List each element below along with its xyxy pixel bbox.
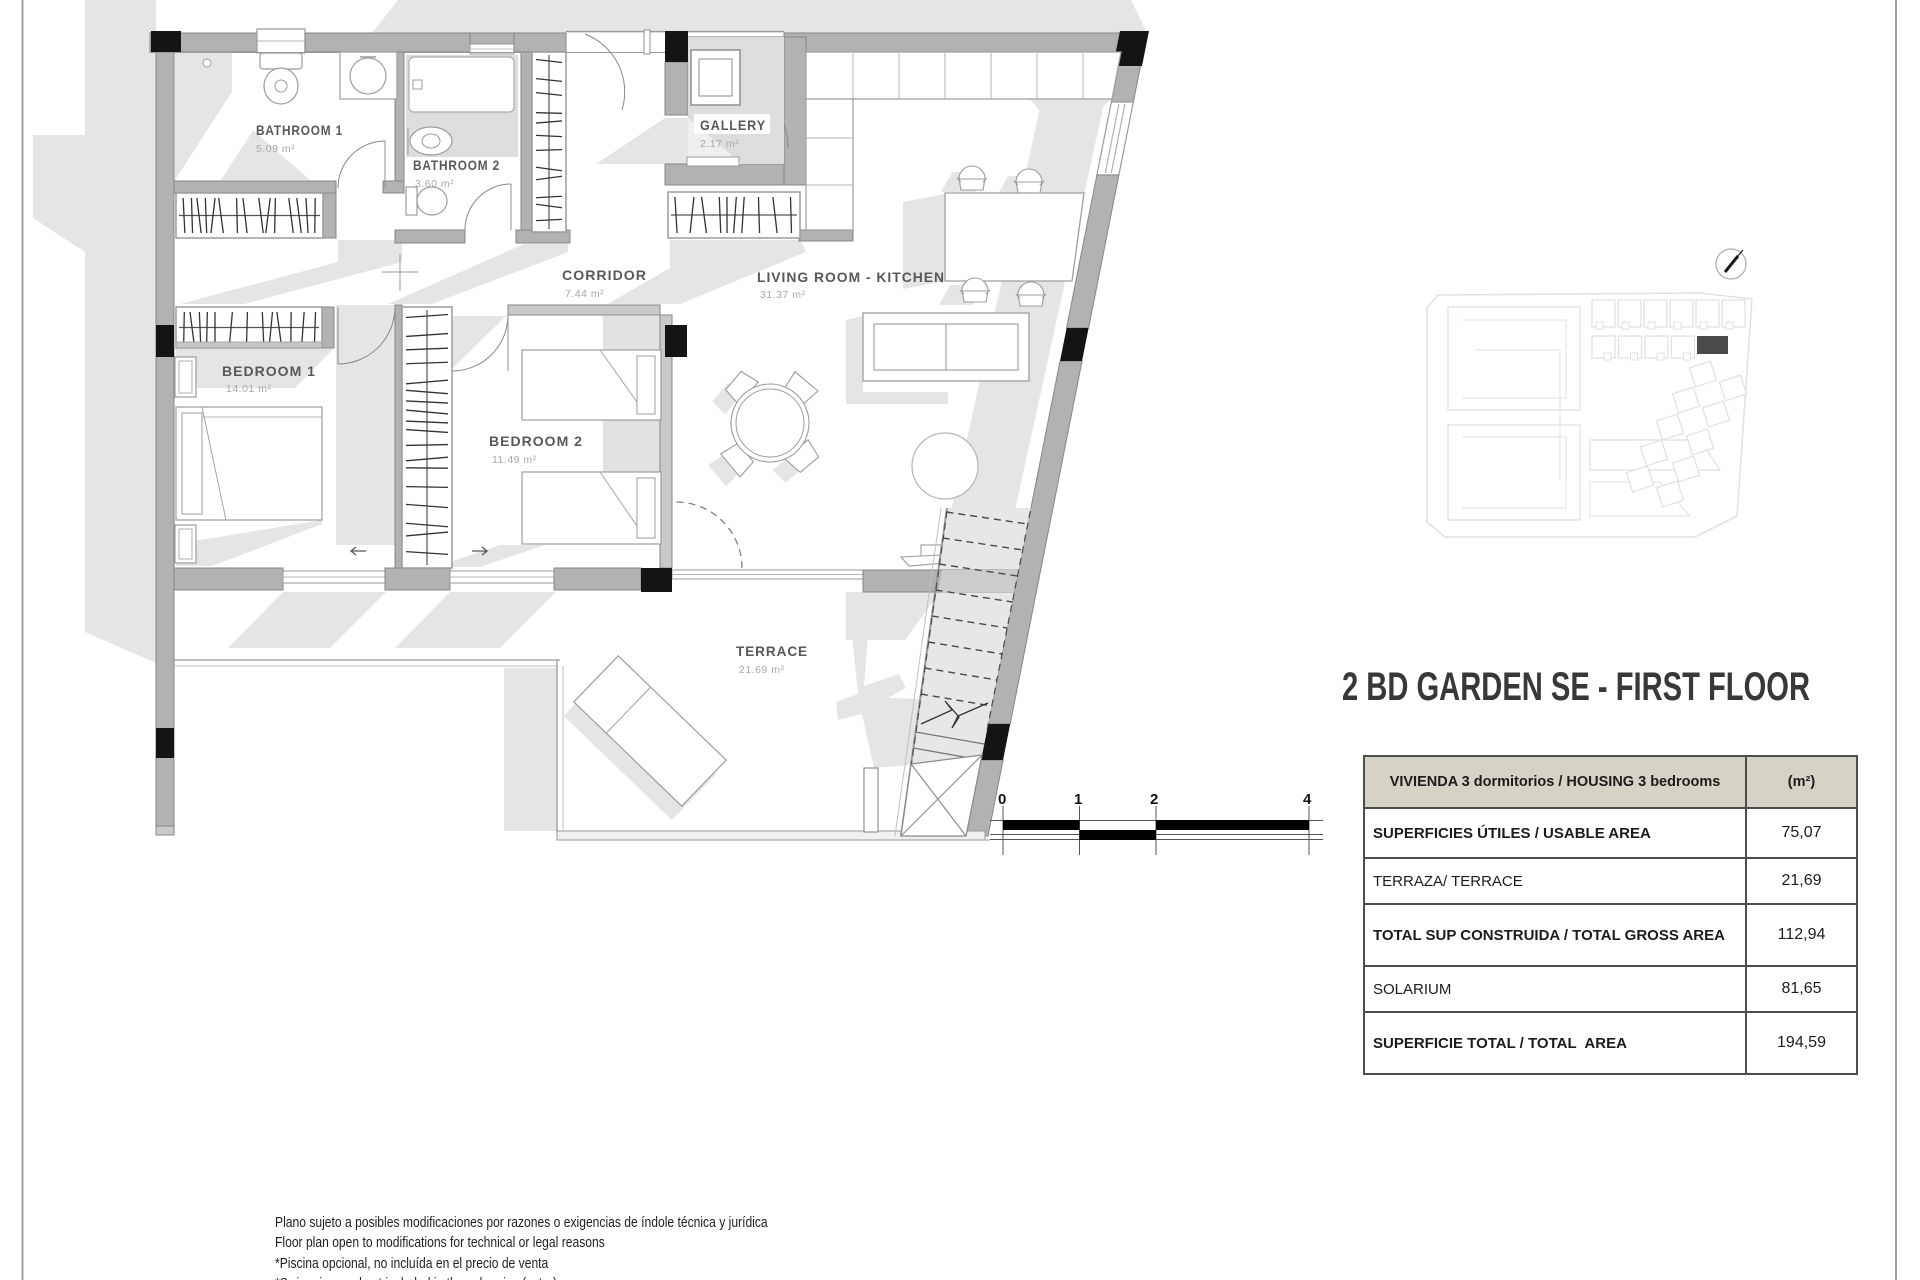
svg-text:BATHROOM 2: BATHROOM 2	[413, 157, 500, 173]
svg-text:GALLERY: GALLERY	[700, 117, 766, 133]
svg-text:11.49 m²: 11.49 m²	[492, 454, 537, 466]
svg-text:LIVING ROOM - KITCHEN: LIVING ROOM - KITCHEN	[757, 269, 945, 285]
svg-text:14.01 m²: 14.01 m²	[226, 383, 271, 395]
svg-text:3.60 m²: 3.60 m²	[415, 178, 454, 190]
svg-text:21.69 m²: 21.69 m²	[739, 664, 784, 676]
svg-text:2.17 m²: 2.17 m²	[700, 138, 739, 150]
svg-text:1: 1	[1074, 791, 1082, 808]
svg-text:BEDROOM 2: BEDROOM 2	[489, 433, 583, 449]
svg-text:2 BD GARDEN SE - FIRST FLOOR: 2 BD GARDEN SE - FIRST FLOOR	[1342, 665, 1810, 709]
svg-text:2: 2	[1150, 791, 1158, 808]
svg-text:0: 0	[998, 791, 1006, 808]
svg-text:TERRACE: TERRACE	[736, 643, 808, 659]
svg-text:31.37 m²: 31.37 m²	[760, 289, 805, 301]
svg-text:7.44 m²: 7.44 m²	[565, 288, 604, 300]
svg-text:BATHROOM 1: BATHROOM 1	[256, 122, 343, 138]
svg-text:BEDROOM 1: BEDROOM 1	[222, 363, 316, 379]
svg-text:CORRIDOR: CORRIDOR	[562, 267, 647, 283]
svg-text:4: 4	[1303, 791, 1312, 808]
svg-text:5.09 m²: 5.09 m²	[256, 143, 295, 155]
